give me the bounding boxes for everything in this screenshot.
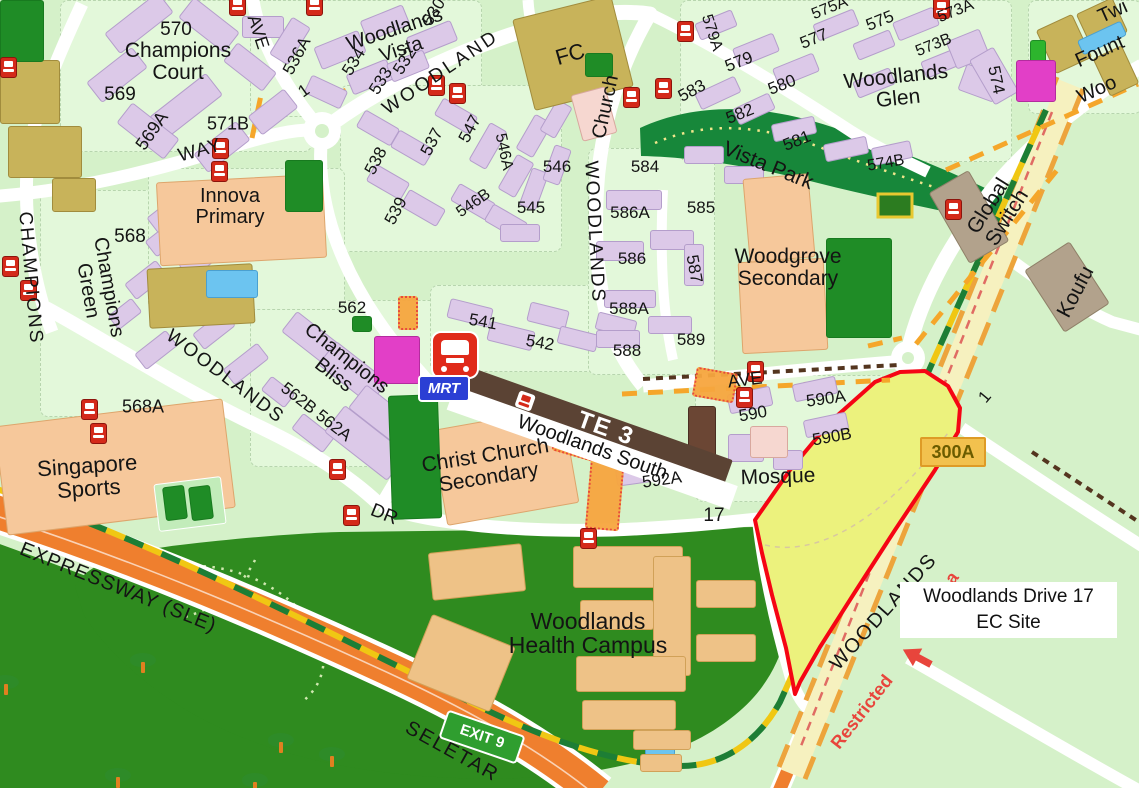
building	[0, 0, 44, 62]
bus-stop-icon	[655, 78, 672, 99]
place-label: Woodgrove Secondary	[734, 246, 841, 290]
building	[633, 730, 691, 750]
block-number: 17	[703, 506, 724, 526]
place-label: Singapore Sports	[36, 450, 139, 503]
block-number: 568	[114, 227, 146, 247]
building	[576, 656, 686, 692]
tree-icon	[319, 747, 345, 767]
building	[188, 485, 214, 521]
place-label: Innova Primary	[196, 186, 265, 228]
bus-stop-icon	[2, 256, 19, 277]
construction-area	[398, 296, 418, 330]
block-number: 568A	[122, 398, 164, 417]
block-number: 588	[613, 342, 641, 360]
block-number: 570	[160, 20, 192, 40]
block-number: 585	[687, 199, 715, 217]
bus-stop-icon	[580, 528, 597, 549]
block-number: 584	[631, 158, 659, 176]
block-number: 586	[618, 250, 646, 268]
block-number: 589	[677, 331, 705, 349]
road	[962, 428, 1139, 546]
bus-stop-icon	[449, 83, 466, 104]
parcel-label: 300A	[920, 437, 986, 467]
tree-icon	[105, 768, 131, 788]
building	[696, 580, 756, 608]
bus-stop-icon	[945, 199, 962, 220]
building	[285, 160, 323, 212]
road	[908, 658, 1139, 788]
mrt-tag: MRT	[420, 377, 468, 400]
building	[352, 316, 372, 332]
bus-stop-icon	[677, 21, 694, 42]
roundabout-island	[315, 124, 329, 138]
block-number: 562	[338, 299, 366, 317]
block-number: 588A	[609, 300, 649, 318]
tree-icon	[0, 675, 19, 695]
place-label: Woodlands Health Campus	[509, 609, 668, 657]
place-label: Mosque	[740, 465, 815, 490]
building	[684, 146, 724, 164]
building	[585, 53, 613, 77]
bus-stop-icon	[0, 57, 17, 78]
building	[750, 426, 788, 458]
mrt-station-icon	[433, 333, 477, 377]
building	[428, 543, 527, 601]
bus-stop-icon	[229, 0, 246, 16]
bus-stop-icon	[81, 399, 98, 420]
place-label: Champions Court	[125, 40, 231, 84]
bus-stop-icon	[90, 423, 107, 444]
block-number: 586A	[610, 204, 650, 222]
building	[162, 485, 188, 521]
block-number: 546	[543, 158, 571, 176]
building	[640, 754, 682, 772]
bus-stop-icon	[211, 161, 228, 182]
playground	[878, 194, 912, 217]
bus-stop-icon	[623, 87, 640, 108]
bus-stop-icon	[329, 459, 346, 480]
site-callout: Woodlands Drive 17 EC Site	[900, 582, 1117, 638]
block-number: 571B	[207, 115, 249, 134]
map-canvas[interactable]: TE 3 Woodlands South MRT 300A Woodlands …	[0, 0, 1139, 788]
building	[206, 270, 258, 298]
building	[582, 700, 676, 730]
site-callout-line1: Woodlands Drive 17	[900, 584, 1117, 610]
tree-icon	[242, 773, 268, 788]
building	[696, 634, 756, 662]
road-label: AVE	[727, 369, 764, 392]
block-number: 569	[104, 85, 136, 105]
tree-icon	[130, 653, 156, 673]
roundabout-island	[902, 352, 914, 364]
bus-stop-icon	[306, 0, 323, 16]
building	[52, 178, 96, 212]
building	[500, 224, 540, 242]
building	[8, 126, 82, 178]
block-number: 545	[517, 199, 545, 217]
block-number: 587	[683, 253, 705, 284]
site-callout-line2: EC Site	[900, 610, 1117, 636]
building	[1016, 60, 1056, 102]
road	[662, 190, 673, 360]
tree-icon	[268, 733, 294, 753]
bus-stop-icon	[343, 505, 360, 526]
